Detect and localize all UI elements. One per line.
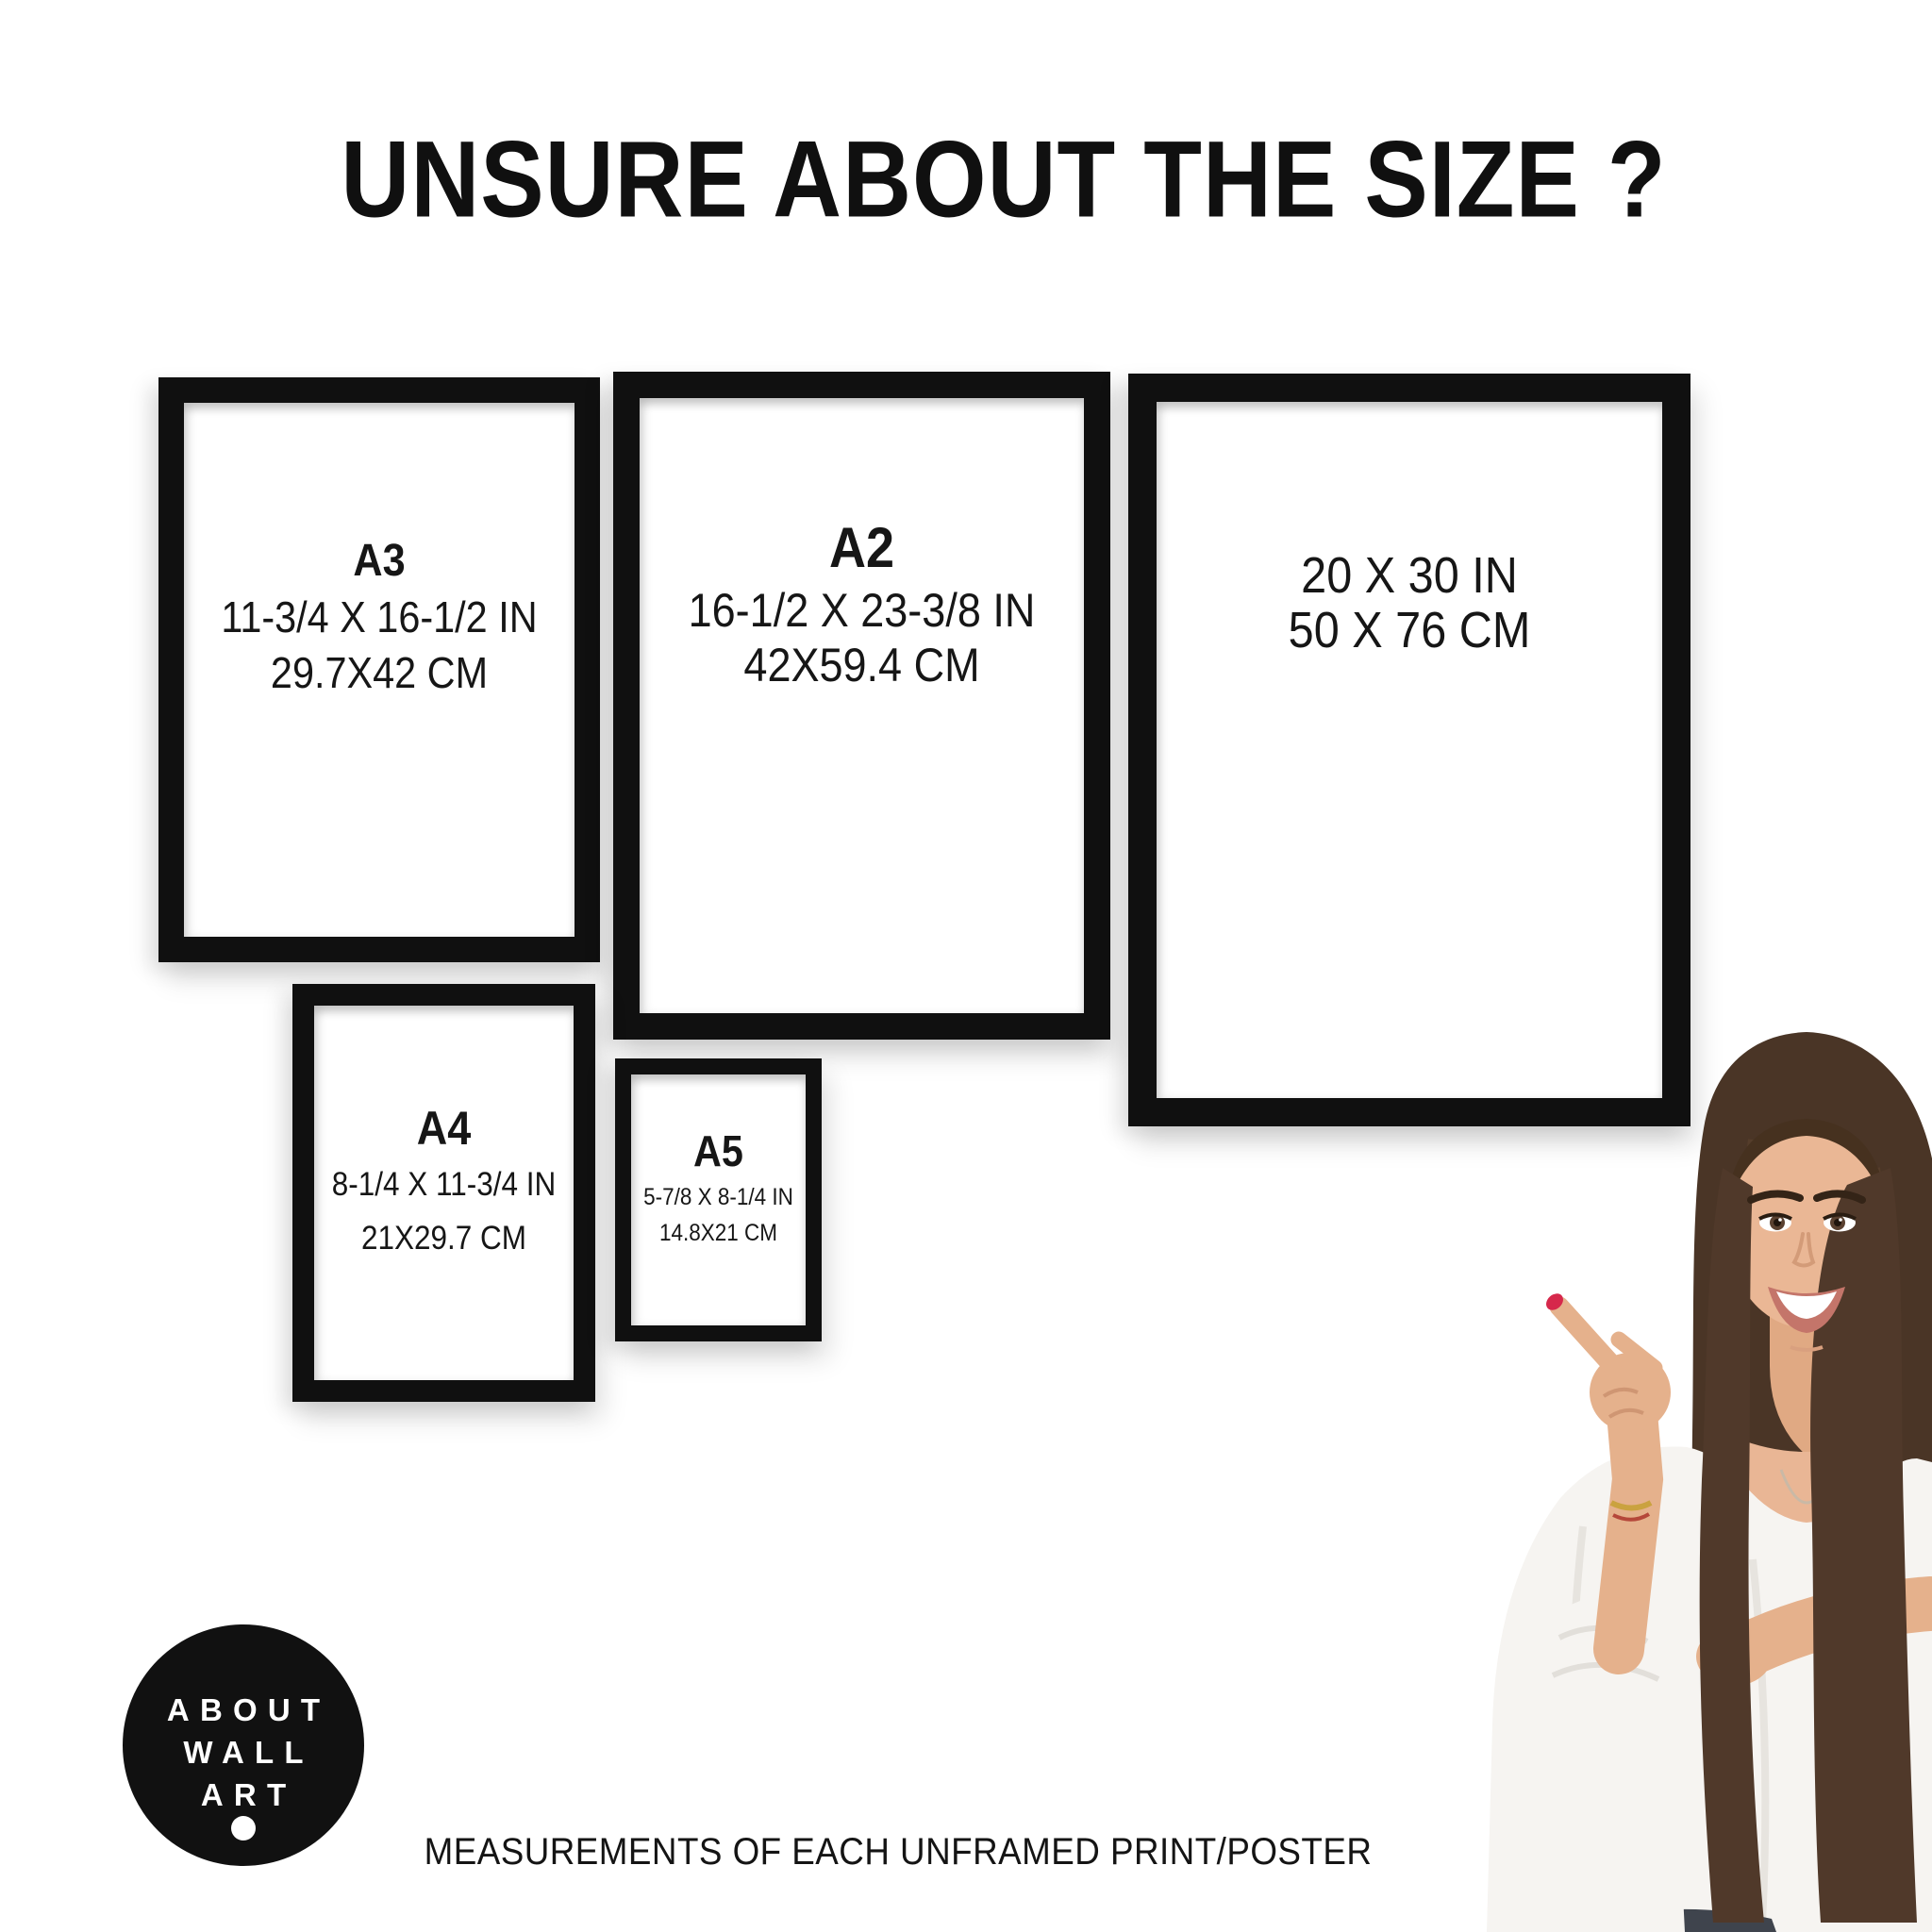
frame-20x30-size-text: 20 X 30 IN 50 X 76 CM [1148,548,1671,658]
size-cm: 14.8X21 CM [606,1216,831,1250]
brand-logo-text: ABOUT WALL ART [123,1624,364,1816]
size-label: A5 [606,1124,831,1178]
index-finger [1559,1307,1611,1364]
frame-a5-mat: A5 5-7/8 X 8-1/4 IN 14.8X21 CM [631,1074,806,1325]
logo-line-art: ART [123,1774,375,1816]
size-inches: 20 X 30 IN [1148,548,1671,603]
size-inches: 8-1/4 X 11-3/4 IN [293,1158,595,1211]
size-cm: 21X29.7 CM [293,1211,595,1266]
woman-pointing-photo [1470,1026,1932,1932]
frame-a3-mat: A3 11-3/4 X 16-1/2 IN 29.7X42 CM [184,403,575,937]
size-guide-poster: UNSURE ABOUT THE SIZE ? A3 11-3/4 X 16-1… [0,0,1932,1932]
frame-20x30-mat: 20 X 30 IN 50 X 76 CM [1157,402,1662,1098]
size-cm: 50 X 76 CM [1148,603,1671,658]
frame-a3-size-text: A3 11-3/4 X 16-1/2 IN 29.7X42 CM [170,533,590,701]
frame-a2-mat: A2 16-1/2 X 23-3/8 IN 42X59.4 CM [640,398,1084,1013]
frame-a4-mat: A4 8-1/4 X 11-3/4 IN 21X29.7 CM [314,1006,574,1380]
frame-a2: A2 16-1/2 X 23-3/8 IN 42X59.4 CM [613,372,1110,1040]
footer-note: MEASUREMENTS OF EACH UNFRAMED PRINT/POST… [425,1831,1373,1874]
frame-a4: A4 8-1/4 X 11-3/4 IN 21X29.7 CM [292,984,595,1402]
logo-line-about: ABOUT [123,1689,375,1731]
logo-dot-icon [231,1816,256,1840]
frame-a3: A3 11-3/4 X 16-1/2 IN 29.7X42 CM [158,377,600,962]
frame-a5: A5 5-7/8 X 8-1/4 IN 14.8X21 CM [615,1058,822,1341]
size-inches: 11-3/4 X 16-1/2 IN [170,590,590,644]
size-cm: 29.7X42 CM [170,644,590,701]
frame-a4-size-text: A4 8-1/4 X 11-3/4 IN 21X29.7 CM [293,1098,595,1266]
size-inches: 16-1/2 X 23-3/8 IN [628,583,1096,638]
logo-line-wall: WALL [123,1731,375,1774]
frame-20x30: 20 X 30 IN 50 X 76 CM [1128,374,1690,1126]
size-inches: 5-7/8 X 8-1/4 IN [606,1178,831,1216]
frame-a5-size-text: A5 5-7/8 X 8-1/4 IN 14.8X21 CM [606,1124,831,1250]
page-title: UNSURE ABOUT THE SIZE ? [341,119,1666,242]
brand-logo: ABOUT WALL ART [123,1624,364,1866]
size-label: A2 [628,513,1096,583]
size-label: A3 [170,533,590,590]
size-label: A4 [293,1098,595,1158]
size-cm: 42X59.4 CM [628,638,1096,692]
frame-a2-size-text: A2 16-1/2 X 23-3/8 IN 42X59.4 CM [628,513,1096,692]
